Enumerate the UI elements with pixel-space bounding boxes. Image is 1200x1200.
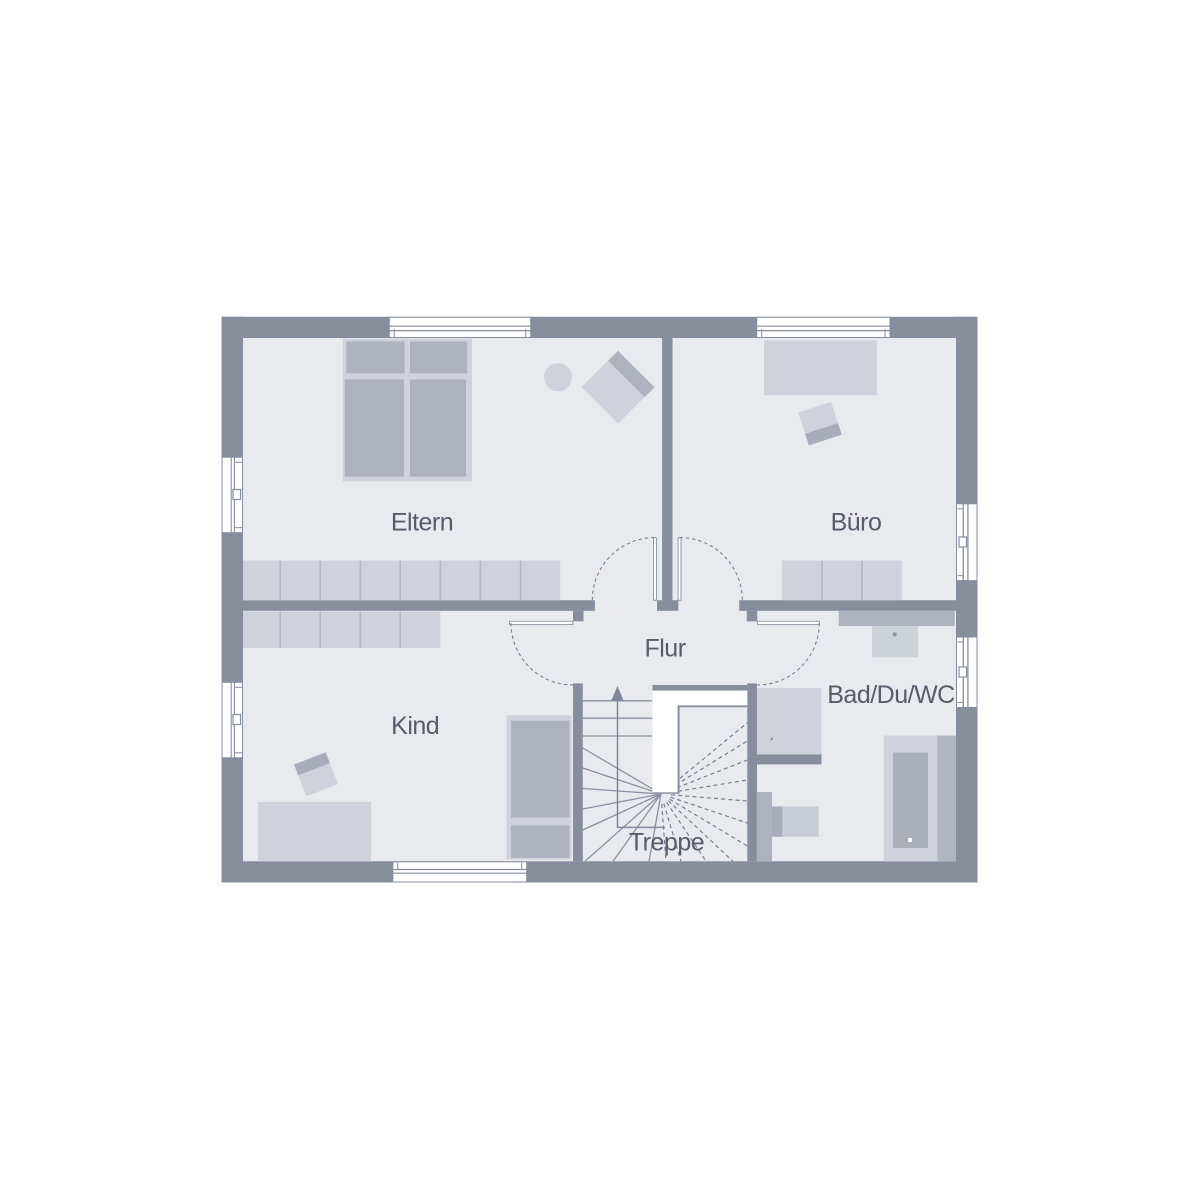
svg-text:Kind: Kind	[391, 712, 439, 740]
svg-text:Treppe: Treppe	[629, 829, 704, 857]
svg-text:Bad/Du/WC: Bad/Du/WC	[827, 681, 955, 709]
svg-text:Eltern: Eltern	[391, 508, 453, 536]
svg-text:Büro: Büro	[831, 508, 882, 536]
svg-text:Flur: Flur	[644, 634, 685, 662]
